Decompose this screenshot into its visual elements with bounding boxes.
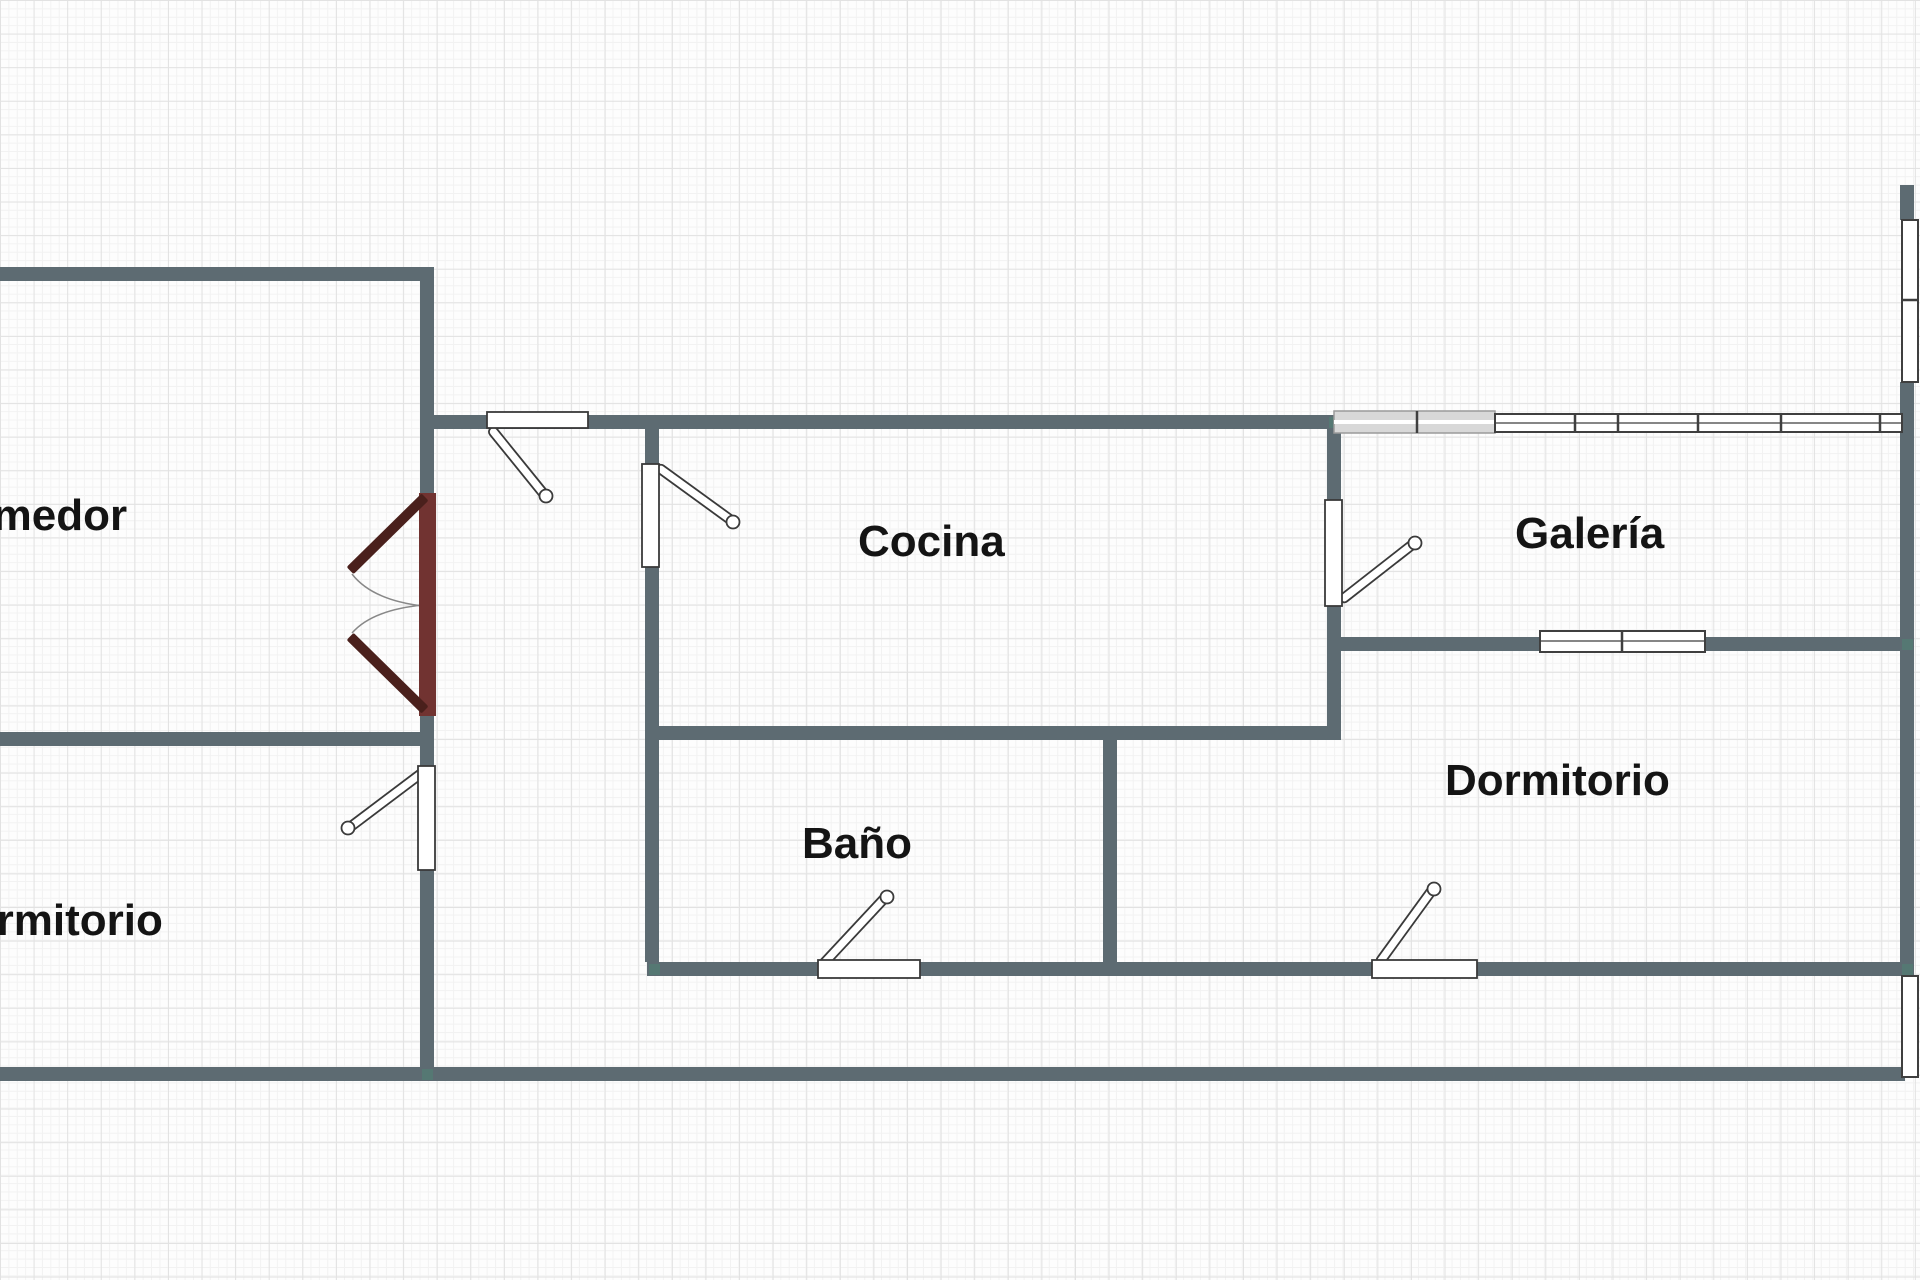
wall-bano-right [1103,740,1117,962]
room-label-dormitorio-left: Dormitorio [0,897,163,945]
french-door-swing-arc-upper [352,574,423,606]
wall-right-outer [1900,382,1914,976]
room-label-comedor: Comedor [0,492,127,540]
french-double-door [347,493,436,716]
french-door-leaf-upper [347,493,429,574]
galeria-bottom-window [1540,631,1705,652]
floor-plan-drawing [0,0,1920,1280]
galeria-top-window-band [1495,414,1902,432]
door-dormitorio-left [342,766,436,870]
right-wall-terrace-door [1902,976,1918,1077]
wall-central-vertical-upper [420,267,434,493]
wall-right-outer-top-cap [1900,185,1914,220]
french-door-swing-arc-lower [352,605,423,633]
floor-plan-canvas: Comedor Cocina Galería Baño Dormitorio D… [0,0,1920,1280]
room-label-cocina: Cocina [858,518,1005,566]
wall-comedor-top [0,267,433,281]
wall-cocina-bottom [653,726,1341,740]
wall-comedor-dormitorio-divider [0,732,427,746]
door-dormitorio-right [1372,883,1477,979]
door-bano [818,891,920,979]
right-wall-window [1902,220,1918,382]
door-galeria [1325,500,1422,606]
wall-central-vertical-lower [420,868,434,1074]
door-cocina [642,463,740,567]
room-label-bano: Baño [802,820,912,868]
door-hallway-top [487,412,588,503]
room-label-galeria: Galería [1515,510,1664,558]
wall-bottom-outer [0,1067,1905,1081]
room-label-dormitorio-right: Dormitorio [1445,757,1670,805]
french-door-leaf-lower [347,633,429,714]
doors [342,412,1478,978]
galeria-gray-window [1334,411,1495,433]
french-door-frame [419,493,436,716]
